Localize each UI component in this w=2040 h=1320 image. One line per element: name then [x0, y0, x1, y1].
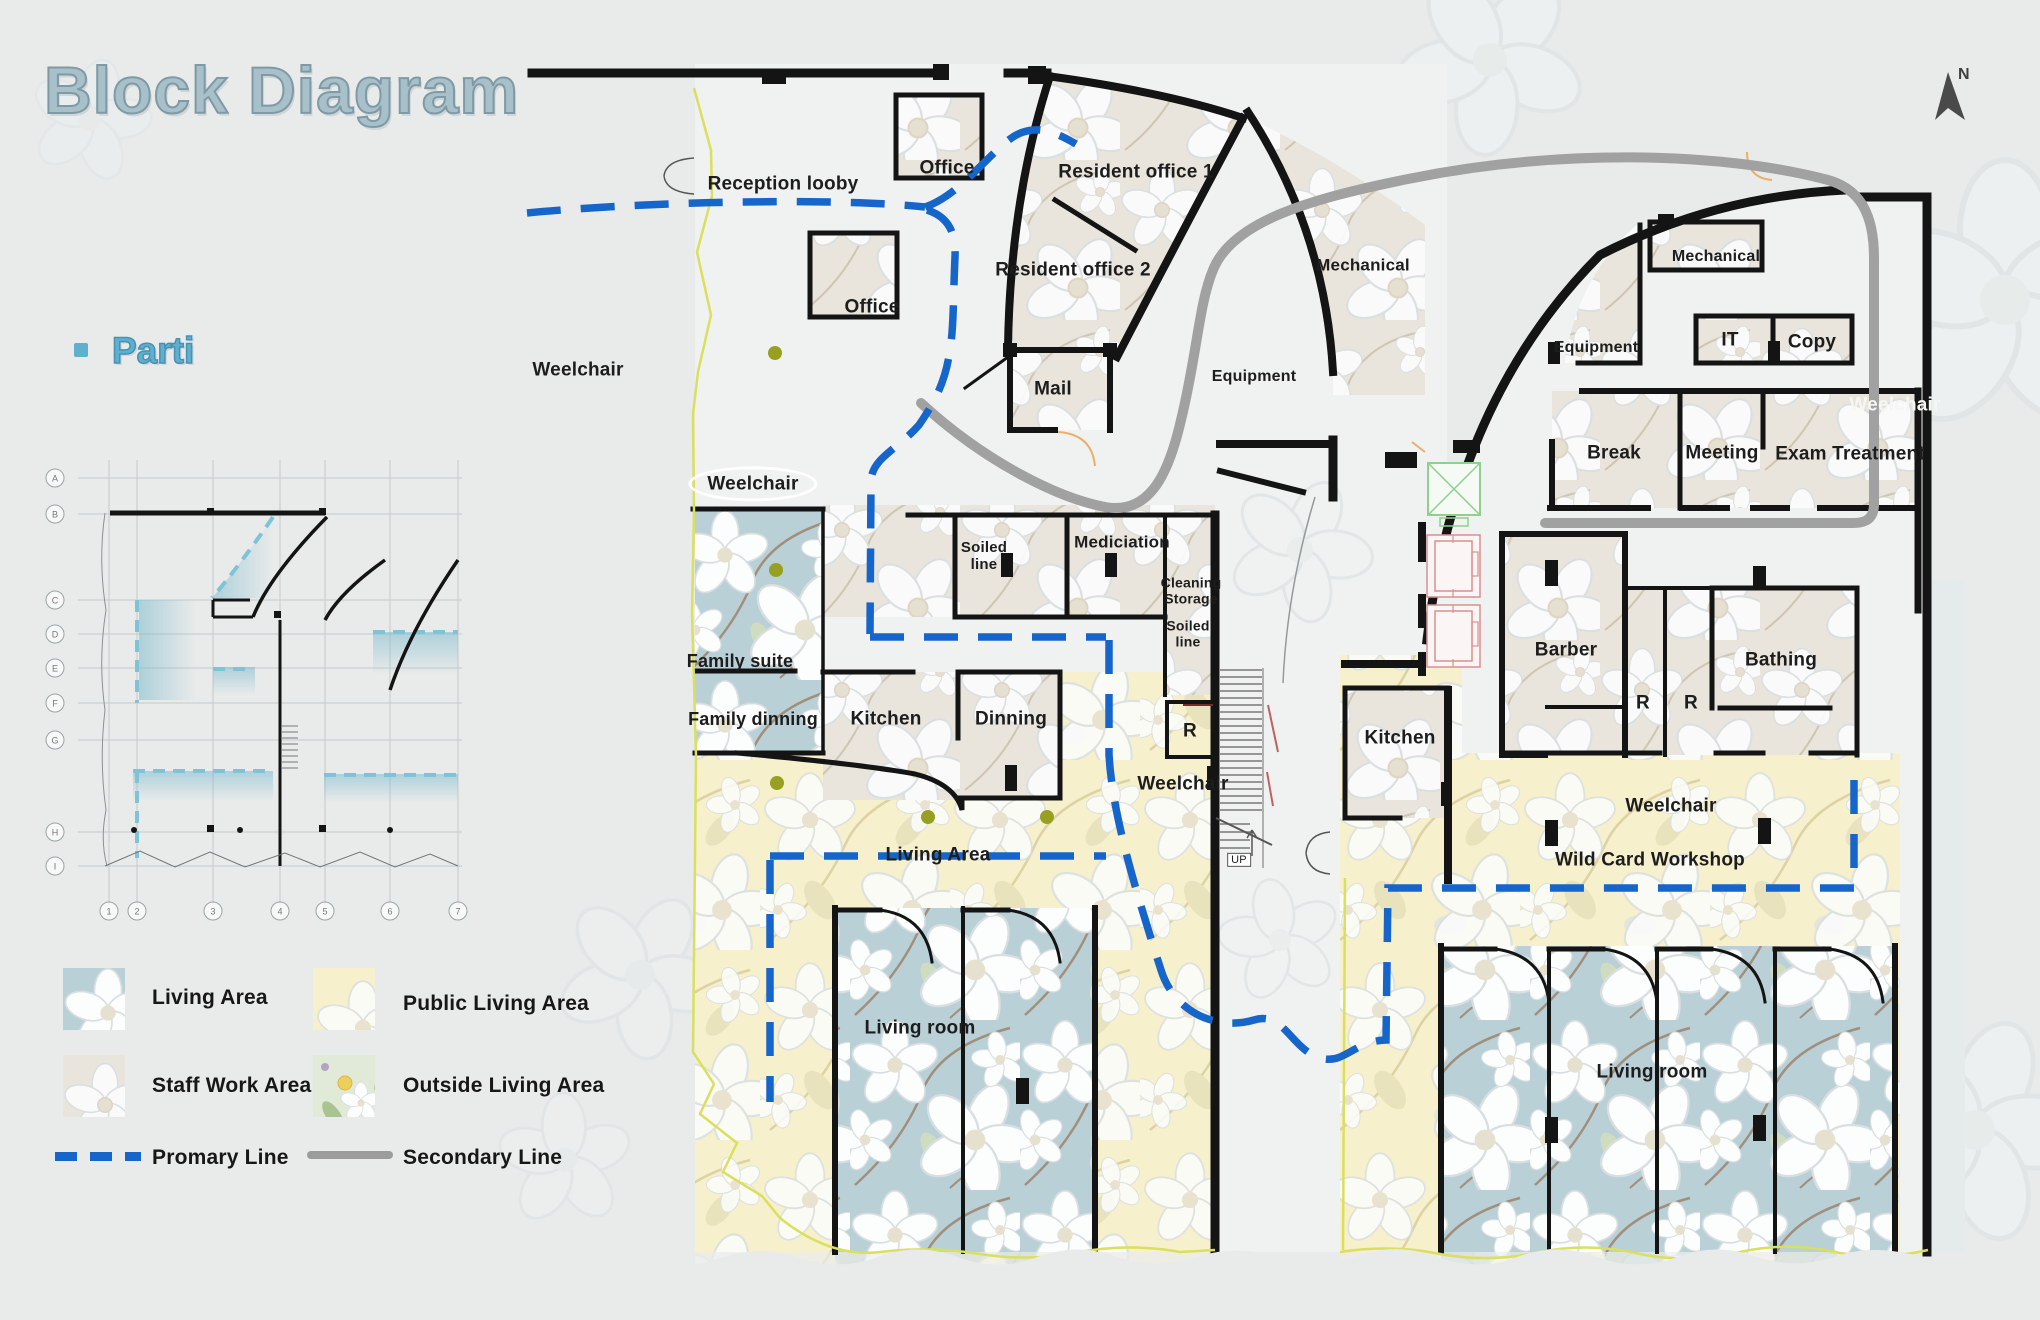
room-label: R	[1636, 692, 1650, 713]
room-label: Reception looby	[708, 173, 859, 194]
room-label: Living Area	[886, 844, 991, 865]
room-label: IT	[1721, 329, 1738, 350]
legend-primary-line-sample	[55, 1152, 141, 1161]
grid-marker: B	[46, 505, 65, 524]
legend-label: Promary Line	[152, 1146, 289, 1170]
legend-swatch-staff-work-area	[63, 1055, 125, 1117]
grid-marker: C	[46, 591, 65, 610]
grid-marker: 6	[381, 902, 400, 921]
room-label: Living room	[865, 1017, 976, 1038]
legend-label: Living Area	[152, 986, 268, 1010]
room-label: Weelchair	[1137, 773, 1228, 794]
room-label: Family suite	[687, 651, 793, 671]
room-label: Office	[844, 296, 899, 317]
room-label: Mechanical	[1672, 248, 1760, 266]
grid-marker: 4	[271, 902, 290, 921]
legend-swatch-outside-living-area	[313, 1055, 375, 1117]
grid-marker: 7	[449, 902, 468, 921]
room-label: Living room	[1597, 1061, 1708, 1082]
parti-heading: Parti	[112, 330, 194, 372]
room-label: Barber	[1535, 639, 1597, 660]
legend-secondary-line-sample	[307, 1151, 393, 1159]
room-label: Equipment	[1554, 339, 1638, 357]
north-label: N	[1958, 66, 1970, 84]
legend-swatch-living-area	[63, 968, 125, 1030]
room-label: R	[1183, 720, 1197, 741]
grid-marker: H	[46, 823, 65, 842]
room-label: Resident office 1	[1058, 161, 1213, 182]
grid-marker: D	[46, 625, 65, 644]
room-label: Bathing	[1745, 649, 1817, 670]
room-label: R	[1684, 692, 1698, 713]
room-label: Mediciation	[1074, 532, 1170, 551]
legend-label: Public Living Area	[403, 992, 589, 1016]
room-label: Mechanical	[1316, 255, 1410, 274]
parti-bullet-icon	[74, 343, 88, 357]
room-label: Family dinning	[688, 709, 818, 729]
room-label: Break	[1587, 442, 1641, 463]
legend-label: Staff Work Area	[152, 1074, 311, 1098]
grid-marker: 5	[316, 902, 335, 921]
room-label: Wild Card Workshop	[1555, 849, 1745, 870]
grid-marker: G	[46, 731, 65, 750]
room-label: Soiled line	[1166, 618, 1209, 649]
page-title: Block Diagram	[44, 52, 519, 128]
grid-marker: 3	[204, 902, 223, 921]
room-label: Weelchair	[1625, 795, 1716, 816]
room-label: Exam Treatment	[1775, 443, 1925, 464]
legend-swatch-public-living-area	[313, 968, 375, 1030]
room-label: Mail	[1034, 378, 1072, 399]
room-label: Resident office 2	[995, 259, 1150, 280]
grid-marker: E	[46, 659, 65, 678]
grid-marker: 1	[100, 902, 119, 921]
room-label: UP	[1227, 853, 1251, 867]
grid-marker: A	[46, 469, 65, 488]
block-diagram-page: Block Diagram Parti N Reception loobyOff…	[0, 0, 2040, 1320]
room-label: Cleaning Storage	[1161, 575, 1222, 606]
room-label: Soiled line	[961, 540, 1007, 574]
grid-marker: I	[46, 857, 65, 876]
legend-label: Secondary Line	[403, 1146, 562, 1170]
room-label: Weelchair	[1849, 394, 1940, 415]
elevators	[1427, 463, 1480, 667]
room-label: Dinning	[975, 708, 1047, 729]
floor-plan-graphic	[0, 0, 2040, 1320]
room-label: Meeting	[1685, 442, 1758, 463]
legend-label: Outside Living Area	[403, 1074, 604, 1098]
room-label: Copy	[1788, 331, 1836, 352]
parti-diagram	[78, 460, 462, 905]
grid-marker: F	[46, 694, 65, 713]
room-label: Weelchair	[532, 359, 623, 380]
room-label: Office	[919, 157, 974, 178]
room-label: Weelchair	[688, 466, 817, 501]
room-label: Equipment	[1212, 368, 1296, 386]
grid-marker: 2	[128, 902, 147, 921]
room-label: Kitchen	[850, 708, 921, 729]
torn-edge	[540, 1249, 1940, 1320]
room-label: Kitchen	[1364, 727, 1435, 748]
